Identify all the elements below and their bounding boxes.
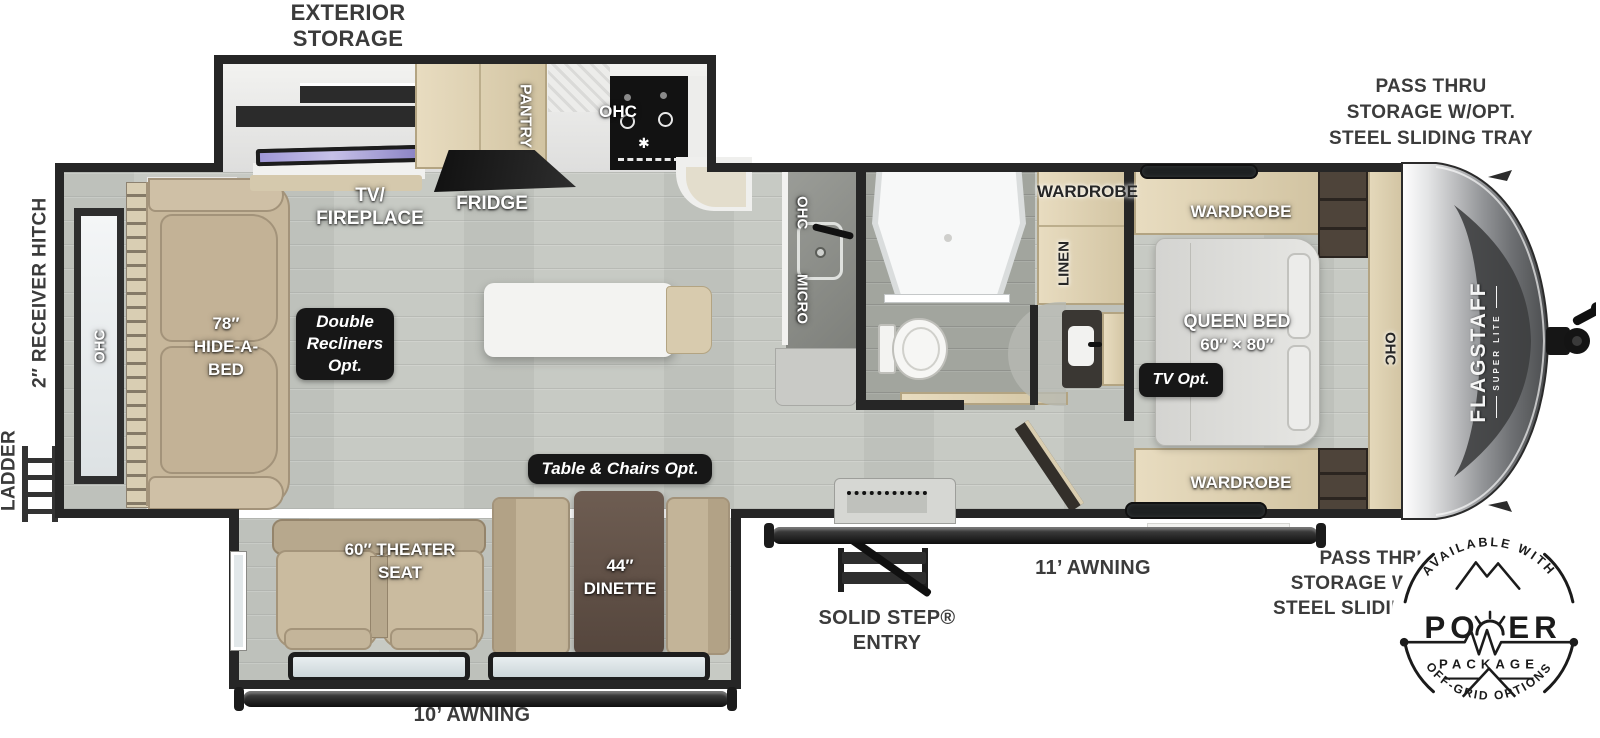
brand-logo: FLAGSTAFF SUPER LITE: [1462, 262, 1506, 442]
counter-ohc-text: OHC: [791, 196, 814, 229]
dinette-line2: DINETTE: [545, 577, 695, 600]
awning-11-cap-left: [764, 523, 774, 548]
receiver-hitch-label: 2″ RECEIVER HITCH: [26, 178, 54, 408]
pass-thru-top-line1: PASS THRU: [1311, 74, 1551, 100]
counter-micro-label: MICRO: [791, 256, 813, 342]
tv-screen-glass: [260, 149, 420, 162]
theater-footrest-left: [284, 628, 372, 650]
tv-fireplace-line2: FIREPLACE: [300, 207, 440, 230]
kitchen-island: [484, 283, 674, 357]
stove: ✱: [610, 76, 688, 170]
double-recliners-line3: Opt.: [328, 355, 362, 377]
dinette-label: 44″ DINETTE: [545, 554, 695, 600]
ladder-text: LADDER: [0, 431, 22, 512]
theater-footrest-right: [390, 628, 478, 650]
awning-10-cap-right: [727, 687, 737, 711]
queen-bed-line2: 60″ × 80″: [1157, 333, 1317, 356]
fridge-label: FRIDGE: [432, 192, 552, 215]
queen-bed-line1: QUEEN BED: [1157, 310, 1317, 333]
awning-11-text: 11’ AWNING: [1035, 557, 1151, 579]
bathroom-wall-left: [856, 172, 866, 410]
table-chairs-text: Table & Chairs Opt.: [541, 459, 698, 479]
bedroom-wardrobe-bottom-label: WARDROBE: [1150, 471, 1332, 494]
wall-bottom-mid: [733, 509, 836, 518]
cap-marker-bottom: [1488, 501, 1512, 512]
awning-10-text: 10’ AWNING: [414, 704, 531, 726]
solid-step-line1: SOLID STEP®: [808, 606, 966, 631]
linen-text: LINEN: [1056, 242, 1073, 287]
bed-pillow-bottom: [1287, 345, 1311, 431]
exterior-storage-shelf: [236, 106, 416, 127]
shower-drain: [944, 234, 952, 242]
awning-10-label: 10’ AWNING: [396, 703, 548, 728]
tv-opt-badge: TV Opt.: [1139, 363, 1223, 397]
kitchen-slide-wall-right: [707, 55, 716, 172]
rear-ohc-text: OHC: [89, 329, 112, 362]
exterior-storage-line1: EXTERIOR: [248, 0, 448, 26]
stove-grill-line: [618, 158, 680, 161]
ladder-icon: [22, 446, 58, 522]
hitch-coupler: [1546, 302, 1596, 355]
bath-wardrobe-label: WARDROBE: [1000, 182, 1175, 202]
kitchen-ohc-text: OHC: [599, 102, 637, 121]
wall-top-front: [708, 163, 1408, 172]
bedroom-wardrobe-top-text: WARDROBE: [1190, 202, 1291, 221]
entry-landing: [834, 478, 956, 524]
bathroom-wall-vanity: [1030, 305, 1038, 405]
receiver-hitch-text: 2″ RECEIVER HITCH: [28, 198, 53, 389]
bathroom-wall-bottom: [856, 400, 964, 410]
exterior-storage-label: EXTERIOR STORAGE: [248, 0, 448, 52]
awning-11-bar: [772, 527, 1318, 544]
pantry-text: PANTRY: [514, 84, 537, 148]
bath-wardrobe-text: WARDROBE: [1037, 182, 1138, 201]
hide-a-bed-line3: BED: [156, 358, 296, 381]
badge-power-right: ER: [1508, 610, 1562, 645]
dinette-bench-right-back: [708, 499, 728, 653]
slide-window-left: [288, 652, 470, 682]
bottom-slide-wall-right: [731, 509, 741, 689]
solid-step-diagonal: [847, 535, 932, 598]
pantry-label: PANTRY: [512, 66, 538, 166]
theater-seat-line1: 60″ THEATER: [310, 538, 490, 561]
toilet: [878, 318, 950, 380]
bedroom-wardrobe-bottom-text: WARDROBE: [1190, 473, 1291, 492]
stove-burner-star: ✱: [638, 136, 650, 150]
awning-10-cap-left: [234, 687, 244, 711]
hide-a-bed-line2: HIDE-A-: [156, 335, 296, 358]
cap-marker-top: [1488, 170, 1512, 181]
counter-ohc-label: OHC: [791, 186, 813, 240]
double-recliners-line2: Recliners: [307, 333, 384, 355]
theater-seat-label: 60″ THEATER SEAT: [310, 538, 490, 584]
solid-step-line2: ENTRY: [808, 631, 966, 656]
wall-bottom-rear: [55, 509, 237, 518]
entry-tread: [847, 491, 927, 513]
pass-thru-top-line2: STORAGE W/OPT.: [1311, 100, 1551, 126]
hide-a-bed-label: 78″ HIDE-A- BED: [156, 312, 296, 381]
kitchen-slide-wall-left: [214, 55, 223, 172]
theater-seat-line2: SEAT: [310, 561, 490, 584]
bedroom-top-window: [1140, 164, 1258, 179]
pass-thru-top-line3: STEEL SLIDING TRAY: [1311, 126, 1551, 152]
kitchen-counter-end: [688, 76, 708, 170]
slide-end-window: [231, 552, 246, 650]
shower-glass-door: [884, 294, 1010, 303]
hide-a-bed-line1: 78″: [156, 312, 296, 335]
brand-rule-right: [1496, 286, 1497, 308]
wall-top-rear: [55, 163, 222, 172]
queen-bed-label: QUEEN BED 60″ × 80″: [1157, 310, 1317, 356]
solid-step-label: SOLID STEP® ENTRY: [808, 606, 966, 656]
tv-fireplace-line1: TV/: [300, 184, 440, 207]
bedroom-bottom-window: [1125, 502, 1267, 519]
counter-wrap-edge: [686, 167, 746, 207]
power-package-badge: AVAILABLE WITH PO ER PACKAGE OFF-GRID OP…: [1390, 524, 1588, 722]
sink-drain: [815, 247, 826, 258]
awning-11-cap-right: [1316, 523, 1326, 548]
shower-pan: [878, 172, 1020, 294]
dinette-bench-left-back: [494, 499, 516, 653]
exterior-storage-line2: STORAGE: [248, 26, 448, 52]
dinette-line1: 44″: [545, 554, 695, 577]
toilet-seat: [902, 327, 940, 371]
exterior-storage-shelf-upper: [300, 83, 418, 103]
sink-base-cabinet: [775, 348, 857, 406]
stove-knob-2: [660, 92, 667, 99]
floorplan-canvas: OHC 78″ HIDE-A- BED PANTRY ✱ OHC TV/ FIR…: [0, 0, 1600, 738]
fridge-text: FRIDGE: [456, 193, 528, 214]
pass-thru-top-label: PASS THRU STORAGE W/OPT. STEEL SLIDING T…: [1311, 74, 1551, 152]
kitchen-ohc-label: OHC: [592, 100, 644, 123]
badge-power-left: PO: [1424, 610, 1479, 645]
bedroom-wardrobe-top-label: WARDROBE: [1150, 200, 1332, 223]
stove-burner-2: [658, 112, 673, 127]
tv-opt-text: TV Opt.: [1153, 371, 1210, 389]
kitchen-island-end: [666, 286, 712, 354]
bedroom-ohc-text: OHC: [1382, 332, 1399, 365]
awning-11-label: 11’ AWNING: [1018, 556, 1168, 581]
bottom-slide-wall-bottom: [229, 680, 741, 689]
rear-ohc-label: OHC: [88, 316, 112, 376]
brand-rule-left: [1496, 396, 1497, 418]
tv-fireplace-label: TV/ FIREPLACE: [300, 184, 440, 230]
bedroom-ohc-label: OHC: [1378, 320, 1402, 378]
counter-micro-text: MICRO: [791, 274, 814, 324]
double-recliners-badge: Double Recliners Opt.: [296, 308, 394, 380]
brand-name: FLAGSTAFF: [1467, 281, 1491, 422]
wall-rear: [55, 163, 64, 518]
slide-window-right: [488, 652, 710, 682]
linen-label: LINEN: [1052, 224, 1076, 304]
kitchen-slide-wall-top: [214, 55, 716, 64]
table-chairs-badge: Table & Chairs Opt.: [528, 454, 712, 484]
brand-sub: SUPER LITE: [1492, 313, 1501, 390]
vanity-faucet: [1088, 342, 1102, 347]
sink-counter-trim: [782, 170, 788, 345]
double-recliners-line1: Double: [316, 311, 374, 333]
ladder-label: LADDER: [0, 416, 21, 526]
sofa-armrest-bottom: [148, 476, 284, 510]
